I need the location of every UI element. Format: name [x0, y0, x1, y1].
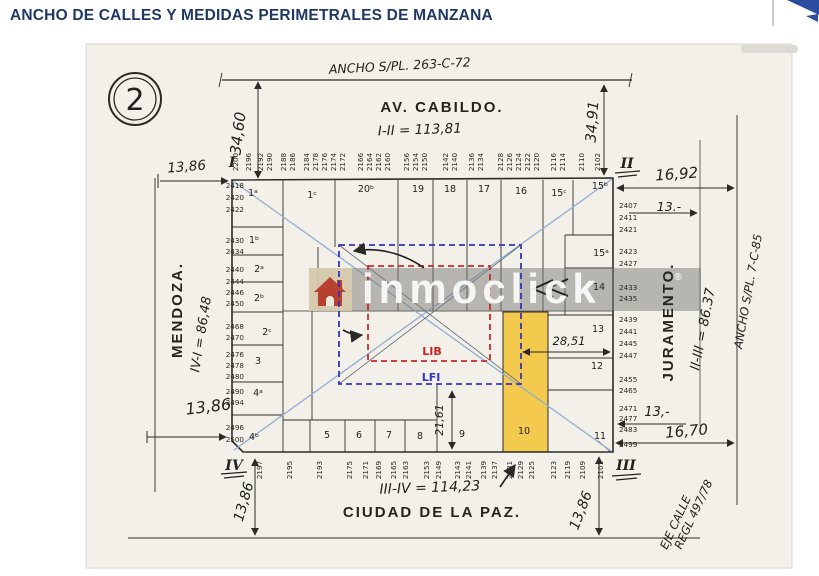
dimension-label: 13,86	[167, 157, 207, 176]
house-number: 2174	[329, 152, 338, 171]
house-number: 2186	[288, 152, 297, 171]
house-number: 2188	[279, 152, 288, 171]
house-number: 2480	[226, 372, 245, 381]
house-number: 2411	[619, 213, 637, 222]
lot-number: 6	[356, 430, 362, 441]
house-number: 2446	[226, 288, 245, 297]
house-number: 2125	[527, 461, 536, 479]
lot-number: 2ᵇ	[254, 293, 264, 304]
lot-number: 10	[518, 426, 530, 437]
house-number: 2109	[578, 460, 587, 479]
house-number: 2102	[593, 153, 602, 171]
house-number: 2143	[453, 461, 462, 479]
lot-number: 9	[459, 429, 465, 440]
watermark-reg: ®	[674, 272, 682, 283]
lot-number: 19	[412, 184, 424, 195]
house-number: 2149	[434, 460, 443, 479]
dimension-label: 28,51	[553, 334, 586, 348]
house-number: 2195	[285, 461, 294, 479]
house-number: 2447	[619, 351, 637, 360]
house-number: 2440	[226, 265, 245, 274]
lot-number: 16	[515, 186, 527, 197]
house-number: 2134	[476, 152, 485, 171]
house-number: 2160	[383, 152, 392, 171]
house-number: 2114	[558, 152, 567, 171]
house-number: 2123	[549, 461, 558, 479]
house-number: 2136	[467, 152, 476, 171]
house-number: 2450	[226, 299, 245, 308]
house-number: 2441	[619, 327, 637, 336]
house-number: 2455	[619, 375, 637, 384]
house-number: 2427	[619, 259, 637, 268]
dimension-label: 16,92	[655, 164, 699, 185]
house-number: 2139	[479, 460, 488, 479]
lot-number: 15ᵃ	[593, 248, 609, 259]
dimension-label: 34,91	[584, 100, 603, 143]
house-number: 2162	[374, 153, 383, 171]
lot-number: 1ᶜ	[307, 190, 317, 201]
zone-label-lib: LIB	[422, 345, 442, 358]
house-number: 2470	[226, 333, 245, 342]
house-number: 2418	[226, 181, 245, 190]
lot-number: 4ᵃ	[253, 388, 263, 399]
house-number: 2171	[361, 461, 370, 479]
house-number: 2421	[619, 225, 637, 234]
dimension-label: 13,-	[644, 405, 670, 420]
house-number: 2116	[549, 152, 558, 171]
house-number: 2483	[619, 425, 637, 434]
corner-marker: IV	[224, 458, 245, 474]
house-number: 2420	[226, 193, 245, 202]
watermark-text: inmoclick	[362, 265, 601, 312]
house-number: 2156	[402, 152, 411, 171]
house-number: 2200	[231, 152, 240, 171]
house-number: 2172	[338, 153, 347, 171]
house-number: 2423	[619, 247, 637, 256]
house-number: 2496	[226, 423, 245, 432]
segment-length-top: I-II = 113,81	[378, 121, 462, 140]
house-number: 2433	[619, 283, 637, 292]
house-number: 2494	[226, 398, 245, 407]
house-number: 2190	[265, 152, 274, 171]
house-number: 2434	[226, 247, 245, 256]
house-number: 2137	[490, 461, 499, 479]
house-number: 2196	[244, 152, 253, 171]
house-number: 2164	[365, 152, 374, 171]
lot-number: 1ᵇ	[249, 235, 259, 246]
lot-number: 13	[592, 324, 604, 335]
house-number: 2129	[516, 460, 525, 479]
house-number: 2192	[256, 153, 265, 171]
corner-marker: III	[615, 458, 636, 474]
house-number: 2141	[464, 461, 473, 479]
house-number: 2150	[420, 152, 429, 171]
house-number: 2126	[505, 152, 514, 171]
lot-number: 17	[478, 184, 490, 195]
house-number: 2165	[389, 461, 398, 479]
logo-corner	[773, 0, 819, 26]
house-number: 2430	[226, 236, 245, 245]
house-number: 2499	[619, 440, 638, 449]
house-number: 2140	[450, 152, 459, 171]
house-number: 2439	[619, 315, 638, 324]
house-number: 2178	[311, 152, 320, 171]
corner-marker: II	[619, 156, 634, 172]
lot-number: 11	[594, 431, 606, 442]
house-number: 2490	[226, 387, 245, 396]
house-number: 2471	[619, 404, 637, 413]
street-name-bottom: CIUDAD DE LA PAZ.	[343, 504, 521, 521]
house-number: 2407	[619, 201, 637, 210]
house-number: 2468	[226, 322, 245, 331]
lot-number: 7	[386, 430, 392, 441]
house-number: 2119	[563, 460, 572, 479]
street-name-left: MENDOZA.	[169, 262, 186, 358]
house-number: 2175	[345, 461, 354, 479]
lot-number: 2ᶜ	[262, 327, 272, 338]
scan-smudge	[741, 45, 798, 53]
lot-number: 4ᵇ	[249, 432, 259, 443]
house-number: 2176	[320, 152, 329, 171]
house-number: 2445	[619, 339, 637, 348]
lot-number: 18	[444, 184, 456, 195]
house-number: 2465	[619, 386, 637, 395]
dimension-label: 21,61	[433, 404, 446, 436]
house-number: 2197	[255, 461, 264, 479]
house-number: 2101	[596, 461, 605, 479]
lot-number: 15ᶜ	[551, 188, 567, 199]
house-number: 2422	[226, 205, 244, 214]
house-number: 2435	[619, 294, 637, 303]
dimension-label: 13.-	[657, 199, 682, 214]
lot-number: 8	[417, 431, 423, 442]
lot-number: 15ᵇ	[592, 181, 608, 192]
lot-number: 1ᵃ	[248, 188, 258, 199]
house-number: 2153	[422, 461, 431, 479]
lot-number: 2ᵃ	[254, 264, 264, 275]
lot-number: 20ᵇ	[358, 184, 374, 195]
lot-number: 12	[591, 361, 603, 372]
lot-number: 14	[593, 282, 605, 293]
house-number: 2154	[411, 152, 420, 171]
house-number: 2166	[356, 152, 365, 171]
page-title: ANCHO DE CALLES Y MEDIDAS PERIMETRALES D…	[10, 7, 493, 25]
house-number: 2478	[226, 361, 245, 370]
dimension-label: 16,70	[664, 420, 708, 442]
house-number: 2477	[619, 414, 637, 423]
house-number: 2124	[514, 152, 523, 171]
house-number: 2131	[505, 461, 514, 479]
street-name-top: AV. CABILDO.	[380, 99, 503, 116]
house-number: 2142	[441, 153, 450, 171]
zone-label-lfi: LFI	[422, 371, 441, 384]
house-number: 2122	[523, 153, 532, 171]
house-number: 2500	[226, 435, 245, 444]
lot-number: 5	[324, 430, 330, 441]
lot-number: 3	[255, 356, 261, 367]
cadastral-plan: 2ANCHO S/PL. 263-C-72AV. CABILDO.I-II = …	[0, 0, 819, 576]
house-number: 2120	[532, 152, 541, 171]
house-number: 2184	[302, 152, 311, 171]
house-number: 2110	[577, 152, 586, 171]
house-number: 2128	[496, 152, 505, 171]
house-number: 2476	[226, 350, 245, 359]
house-number: 2193	[315, 461, 324, 479]
house-number: 2163	[401, 461, 410, 479]
sheet-number: 2	[125, 83, 144, 118]
house-number: 2444	[226, 277, 245, 286]
house-number: 2169	[374, 460, 383, 479]
